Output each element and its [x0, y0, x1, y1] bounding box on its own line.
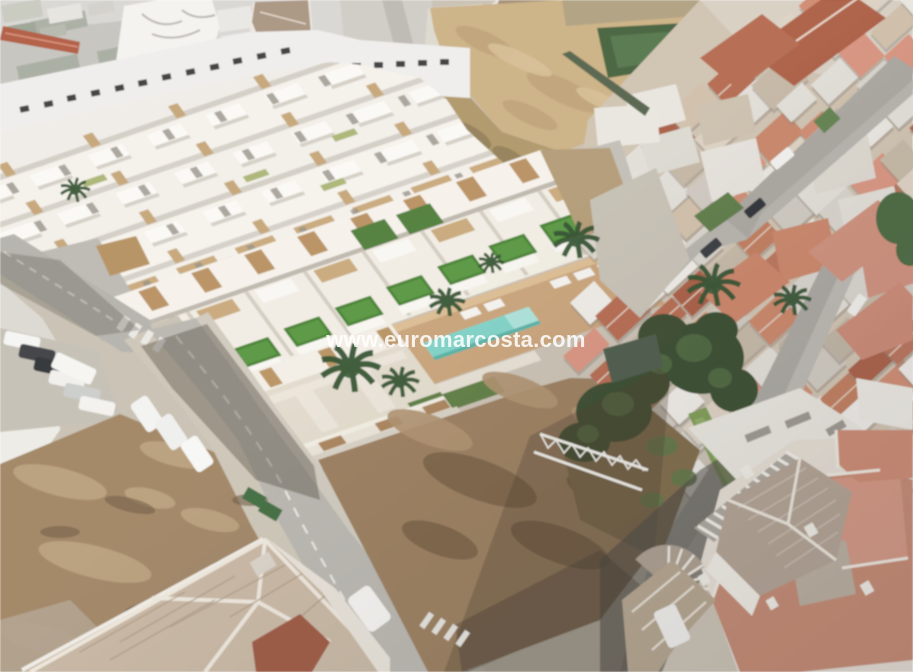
svg-text:www.euromarcosta.com: www.euromarcosta.com: [325, 327, 585, 352]
